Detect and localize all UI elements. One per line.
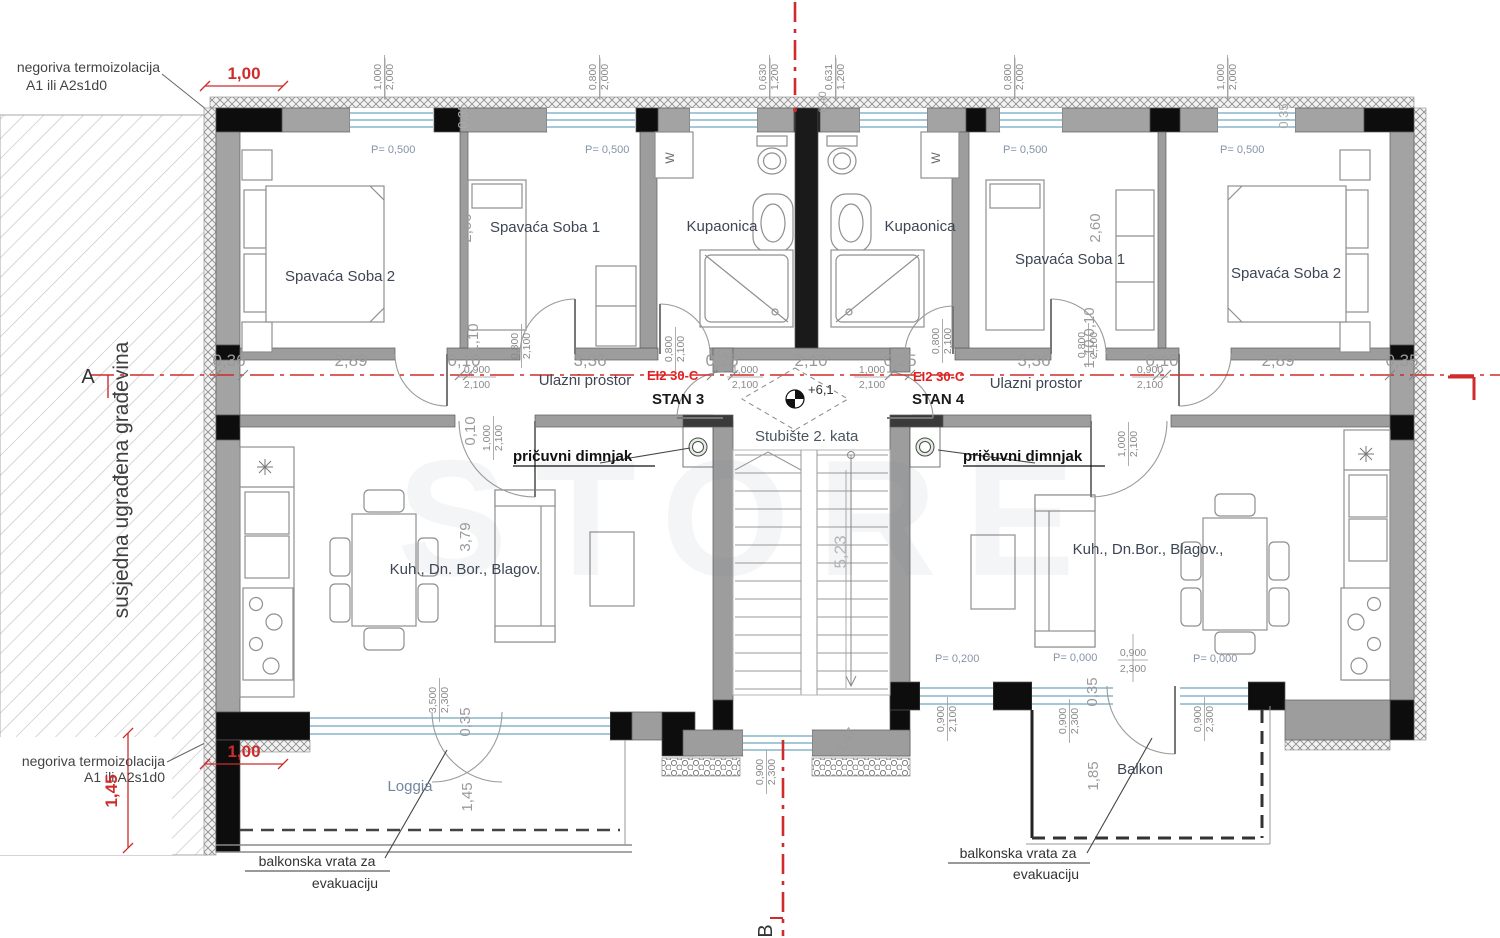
chain-dim-10: 0,35 <box>1385 351 1418 370</box>
room-bedroom1-right: Spavaća Soba 1 <box>1015 251 1125 268</box>
svg-text:0,800: 0,800 <box>1076 332 1088 358</box>
svg-text:2,300: 2,300 <box>439 687 451 713</box>
parapet-2: P= 0,500 <box>585 144 629 156</box>
loggia-edge <box>216 740 632 852</box>
vdim-185: 1,85 <box>1085 761 1102 790</box>
bed-double-right <box>1228 150 1370 352</box>
floor-plan-drawing: STORE negoriva termoizolacija A1 ili A2s… <box>0 0 1500 938</box>
svg-text:1,000: 1,000 <box>1116 431 1128 457</box>
svg-text:2,100: 2,100 <box>493 425 505 451</box>
chain-dim-5: 2,10 <box>794 351 827 370</box>
window-label-3: 0,630 1,200 <box>757 55 781 99</box>
room-bedroom2-left: Spavaća Soba 2 <box>285 268 395 285</box>
stan3-label: STAN 3 <box>652 391 704 408</box>
svg-text:2,100: 2,100 <box>732 379 758 391</box>
washer-label-left: W <box>663 152 677 164</box>
fire-door-right: EI2 30-C <box>913 369 965 384</box>
balcony-door-left-1: balkonska vrata za <box>259 853 376 869</box>
red-dim-left-v: 1,45 <box>102 774 121 807</box>
svg-text:2,100: 2,100 <box>942 328 954 354</box>
window-label-1: 1,000 2,000 <box>372 55 396 99</box>
vdim-010-left: 0,10 <box>462 416 479 445</box>
parapet-5: P= 0,200 <box>935 653 979 665</box>
window-label-5: 0,800 2,000 <box>1002 55 1026 99</box>
room-living-left: Kuh., Dn. Bor., Blagov. <box>390 561 541 578</box>
svg-text:1,200: 1,200 <box>769 64 781 90</box>
red-dim-bottom: 1,00 <box>227 742 260 761</box>
axis-b-label: B <box>755 924 777 937</box>
room-entry-left: Ulazni prostor <box>539 372 632 389</box>
vdim-110-left: 1,10 <box>465 323 482 352</box>
chimney-label-right: pričuvni dimnjak <box>963 448 1083 465</box>
bed-single-left <box>468 180 636 346</box>
chain-dim-0: 0,36 <box>212 351 245 370</box>
door-label-0800-l1: 0,800 2,100 <box>509 324 533 368</box>
svg-text:2,100: 2,100 <box>464 379 490 391</box>
vdim-035-topwall-l: 0,35 <box>455 103 470 128</box>
door-label-entry-stan4: 1,000 2,100 <box>854 364 890 391</box>
svg-text:1,000: 1,000 <box>859 364 885 376</box>
bed-double-left <box>242 150 384 352</box>
svg-text:1,000: 1,000 <box>732 364 758 376</box>
sink-symbol-right <box>1358 446 1374 462</box>
svg-text:2,100: 2,100 <box>1137 379 1163 391</box>
balcony-door-right-2: evakuaciju <box>1013 866 1079 882</box>
room-bath-right: Kupaonica <box>885 218 957 235</box>
room-bath-left: Kupaonica <box>687 218 759 235</box>
svg-text:0,630: 0,630 <box>757 64 769 90</box>
door-label-0900-hall-l: 0,900 2,100 <box>458 364 496 391</box>
svg-text:0,800: 0,800 <box>1002 64 1014 90</box>
vdim-145-gray: 1,45 <box>459 782 476 811</box>
vdim-040-center: 0,40 <box>817 91 829 112</box>
svg-text:0,900: 0,900 <box>1137 364 1163 376</box>
svg-text:0,900: 0,900 <box>1057 708 1069 734</box>
kitchen-right <box>1341 430 1390 680</box>
door-label-0800-l2: 0,800 2,100 <box>663 327 687 371</box>
elevation-marker <box>786 390 804 408</box>
fire-door-left: EI2 30-C <box>647 368 699 383</box>
thermo-note-bottom-1: negoriva termoizolacija <box>22 753 165 769</box>
stan4-label: STAN 4 <box>912 391 965 408</box>
door-balcony <box>1107 686 1175 754</box>
svg-text:2,300: 2,300 <box>1120 663 1146 675</box>
chimney-label-left: pričuvni dimnjak <box>513 448 633 465</box>
parapet-6: P= 0,000 <box>1053 652 1097 664</box>
svg-text:2,300: 2,300 <box>1069 708 1081 734</box>
vdim-035-topwall-r: 0,35 <box>1276 103 1291 128</box>
svg-text:2,000: 2,000 <box>1227 64 1239 90</box>
svg-text:2,000: 2,000 <box>599 64 611 90</box>
washer-label-right: W <box>929 152 943 164</box>
svg-text:0,900: 0,900 <box>935 706 947 732</box>
red-dim-top: 1,00 <box>227 64 260 83</box>
svg-text:2,300: 2,300 <box>766 759 778 785</box>
stair-label: Stubište 2. kata <box>755 428 859 445</box>
floor-plan-svg: STORE negoriva termoizolacija A1 ili A2s… <box>0 0 1500 938</box>
room-living-right: Kuh., Dn.Bor., Blagov., <box>1073 541 1224 558</box>
parapet-3: P= 0,500 <box>1003 144 1047 156</box>
sink-symbol-left <box>257 459 273 475</box>
thermo-note-top-2: A1 ili A2s1d0 <box>26 77 107 93</box>
svg-text:0,900: 0,900 <box>464 364 490 376</box>
room-balcony: Balkon <box>1117 761 1163 778</box>
svg-text:0,800: 0,800 <box>663 336 675 362</box>
chain-dim-7: 3,36 <box>1017 351 1050 370</box>
svg-text:3,500: 3,500 <box>427 687 439 713</box>
svg-text:1,000: 1,000 <box>1215 64 1227 90</box>
svg-text:0,800: 0,800 <box>509 333 521 359</box>
chain-dim-9: 2,89 <box>1261 351 1294 370</box>
balcony-door-right-1: balkonska vrata za <box>960 845 1077 861</box>
svg-text:2,100: 2,100 <box>859 379 885 391</box>
svg-text:1,000: 1,000 <box>481 425 493 451</box>
svg-text:0,900: 0,900 <box>1192 706 1204 732</box>
door-label-0900-hall-r: 0,900 2,100 <box>1132 364 1168 391</box>
room-entry-right: Ulazni prostor <box>990 375 1083 392</box>
parapet-7: P= 0,000 <box>1193 653 1237 665</box>
svg-text:2,100: 2,100 <box>947 706 959 732</box>
chain-dim-3: 3,36 <box>573 351 606 370</box>
svg-text:0,800: 0,800 <box>587 64 599 90</box>
door-label-1000-living-r: 1,000 2,100 <box>1116 422 1140 466</box>
neighbor-label: susjedna ugrađena građevina <box>110 341 133 618</box>
vdim-035-left: 0,35 <box>457 707 474 736</box>
svg-text:2,100: 2,100 <box>675 336 687 362</box>
chain-dim-1: 2,89 <box>334 351 367 370</box>
thermo-note-bottom-2: A1 ili A2s1d0 <box>84 769 165 785</box>
svg-text:2,000: 2,000 <box>1014 64 1026 90</box>
svg-text:0,900: 0,900 <box>1120 647 1146 659</box>
vdim-379: 3,79 <box>457 522 474 551</box>
window-label-6: 1,000 2,000 <box>1215 55 1239 99</box>
window-label-2: 0,800 2,000 <box>587 55 611 99</box>
svg-text:0,631: 0,631 <box>823 64 835 90</box>
door-bedroom2-right <box>1179 354 1231 406</box>
balcony-door-left-2: evakuaciju <box>312 875 378 891</box>
svg-text:2,100: 2,100 <box>521 333 533 359</box>
room-loggia: Loggia <box>387 778 433 795</box>
svg-text:1,000: 1,000 <box>372 64 384 90</box>
parapet-4: P= 0,500 <box>1220 144 1264 156</box>
chain-dim-6: 0,25 <box>883 351 916 370</box>
svg-text:2,100: 2,100 <box>1088 332 1100 358</box>
elevation-value: +6,1 <box>808 382 834 397</box>
neighbor-building-hatch <box>0 74 207 855</box>
svg-text:2,100: 2,100 <box>1128 431 1140 457</box>
gravel-strips <box>662 758 910 776</box>
svg-text:2,000: 2,000 <box>384 64 396 90</box>
vdim-260-left: 2,60 <box>458 213 475 242</box>
vdim-035-right: 0,35 <box>1084 677 1101 706</box>
svg-text:2,300: 2,300 <box>1204 706 1216 732</box>
svg-text:0,800: 0,800 <box>930 328 942 354</box>
axis-a-label: A <box>81 366 95 388</box>
thermo-note-top-1: negoriva termoizolacija <box>17 59 160 75</box>
door-bedroom2-left <box>395 354 447 406</box>
parapet-1: P= 0,500 <box>371 144 415 156</box>
room-bedroom1-left: Spavaća Soba 1 <box>490 219 600 236</box>
door-label-0800-r1: 0,800 2,100 <box>930 319 954 363</box>
window-label-stair-bottom: 0,900 2,300 <box>754 750 778 794</box>
svg-text:1,200: 1,200 <box>835 64 847 90</box>
vdim-523: 5,23 <box>831 535 850 568</box>
vdim-260-right: 2,60 <box>1087 213 1104 242</box>
room-bedroom2-right: Spavaća Soba 2 <box>1231 265 1341 282</box>
door-label-entry-stan3: 1,000 2,100 <box>727 364 763 391</box>
svg-text:0,900: 0,900 <box>754 759 766 785</box>
dining-set-right <box>1181 494 1289 654</box>
kitchen-left <box>240 447 294 697</box>
